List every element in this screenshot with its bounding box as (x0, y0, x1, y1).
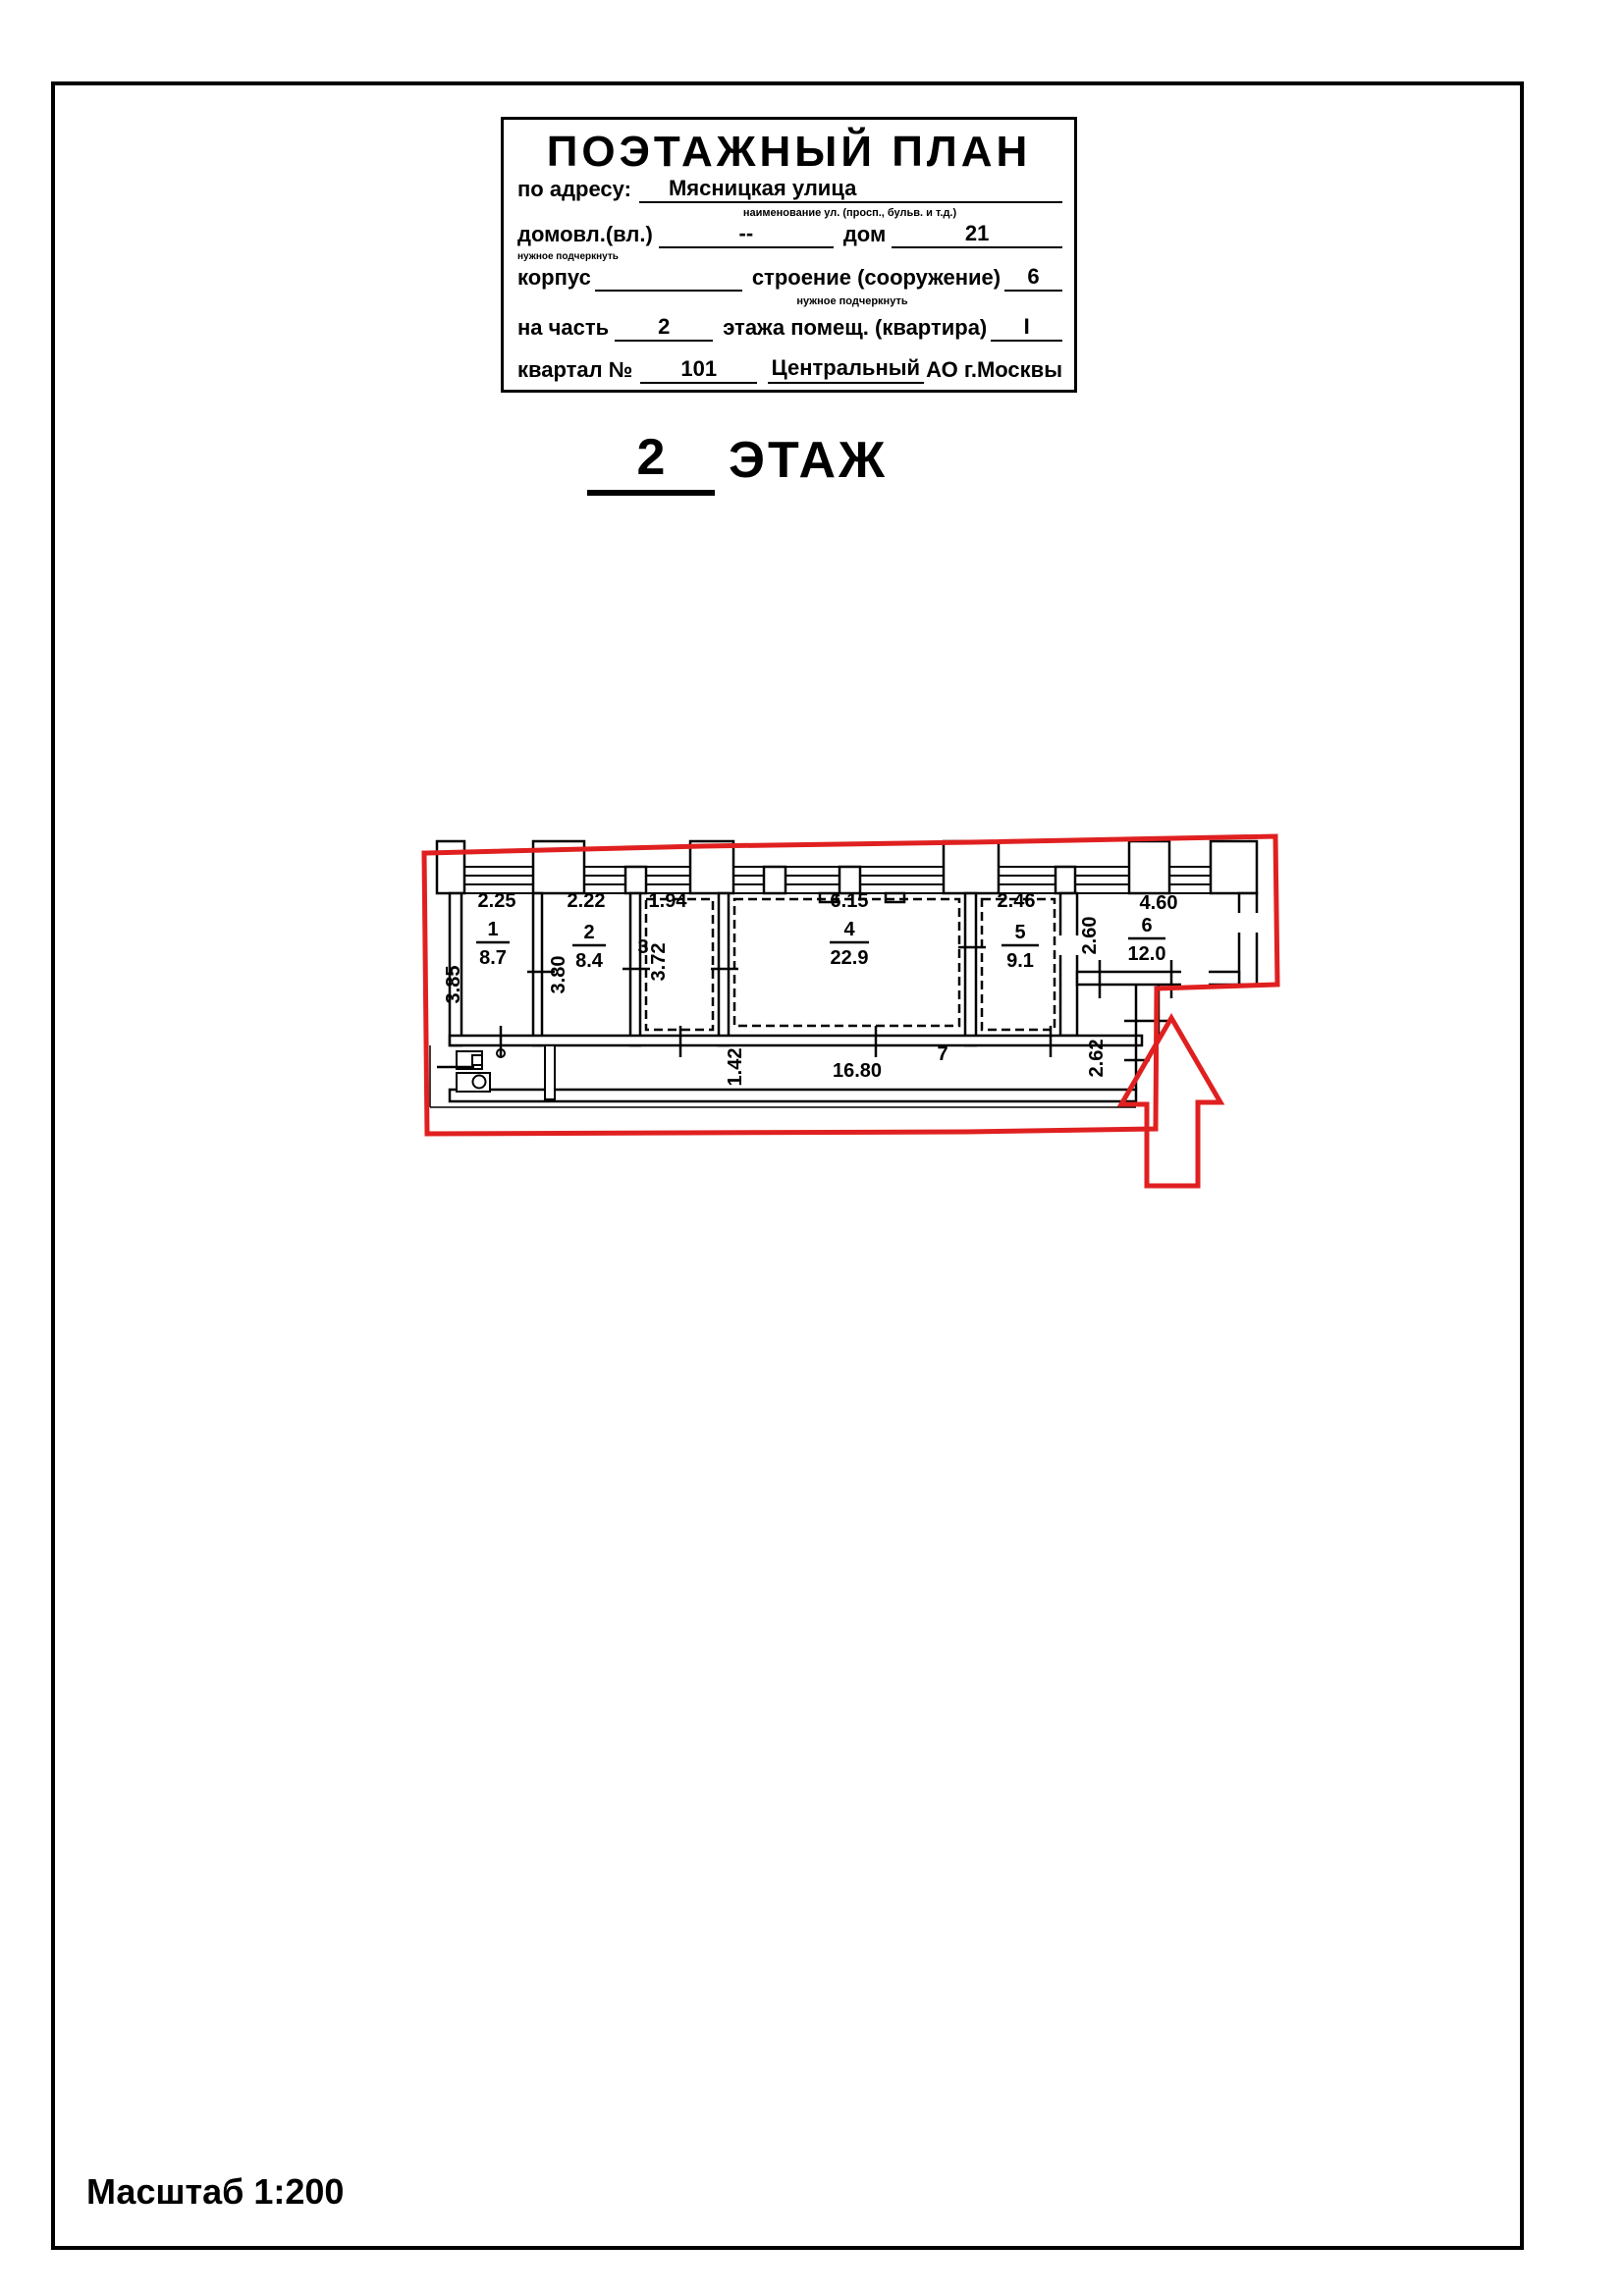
part-value: 2 (615, 314, 713, 342)
korpus-value (595, 268, 742, 292)
room-3-width-label: 1.94 (649, 890, 688, 912)
room-2-width-label: 2.22 (568, 890, 606, 912)
house-label: дом (843, 222, 886, 248)
floor-title: 2 ЭТАЖ (587, 428, 888, 496)
room-3-depth-label: 3.72 (648, 943, 670, 982)
kvartal-value: 101 (640, 356, 757, 384)
address-row: по адресу: Мясницкая улица (517, 176, 1062, 203)
stroenie-note: нужное подчеркнуть (749, 295, 955, 307)
toilet-tank-icon (472, 1055, 482, 1065)
district-suffix: АО г.Москвы (926, 357, 1062, 384)
district-value: Центральный (768, 355, 924, 384)
floor-part-label: этажа помещ. (квартира) (723, 315, 987, 342)
part-label: на часть (517, 315, 609, 342)
address-note: наименование ул. (просп., бульв. и т.д.) (631, 207, 1068, 219)
floor-part-value: I (991, 314, 1062, 342)
corridor-side-label: 2.62 (1086, 1040, 1108, 1078)
floor-number: 2 (587, 428, 715, 496)
stroenie-value: 6 (1004, 264, 1062, 292)
room-5-width-label: 2.46 (998, 890, 1036, 912)
korpus-label: корпус (517, 265, 591, 292)
floor-plan-stamp-box: ПОЭТАЖНЫЙ ПЛАН по адресу: Мясницкая улиц… (501, 117, 1077, 393)
ownership-value: -- (659, 221, 834, 248)
floor-plan: 2.25 1 8.7 3.85 2.22 2 8.4 3.80 1.94 3 3… (407, 810, 1291, 1202)
room-1-depth-label: 3.85 (443, 966, 464, 1004)
floor-word: ЭТАЖ (729, 431, 888, 496)
korpus-row: корпус строение (сооружение) 6 (517, 264, 1062, 292)
stamp-title: ПОЭТАЖНЫЙ ПЛАН (504, 128, 1074, 177)
address-value: Мясницкая улица (639, 176, 1062, 203)
scale-label: Масштаб 1:200 (86, 2171, 344, 2213)
room-5-area: 9.1 (1006, 950, 1034, 972)
corridor-number: 7 (937, 1043, 947, 1065)
fixture-room-wall (545, 1045, 555, 1099)
address-label: по адресу: (517, 177, 631, 203)
room-4-number: 4 (843, 919, 855, 940)
room-5-number: 5 (1014, 922, 1025, 943)
room-6-depth-label: 2.60 (1079, 917, 1101, 955)
room-6-area: 12.0 (1128, 943, 1166, 965)
sink-bowl-icon (473, 1076, 486, 1089)
stroenie-label: строение (сооружение) (752, 265, 1001, 292)
room-6-number: 6 (1141, 915, 1152, 936)
corridor-length-label: 16.80 (833, 1060, 882, 1082)
room-2-number: 2 (583, 922, 594, 943)
room-1-width-label: 2.25 (478, 890, 516, 912)
room-6-width-label: 4.60 (1140, 892, 1178, 914)
part-row: на часть 2 этажа помещ. (квартира) I (517, 314, 1062, 342)
house-value: 21 (892, 221, 1062, 248)
kvartal-row: квартал № 101 Центральный АО г.Москвы (517, 355, 1062, 384)
room-1-area: 8.7 (479, 947, 507, 969)
kvartal-label: квартал № (517, 357, 632, 384)
room-2-depth-label: 3.80 (548, 956, 569, 994)
room-4-width-label: 6.15 (831, 890, 869, 912)
ownership-note: нужное подчеркнуть (517, 251, 619, 262)
room-4-area: 22.9 (831, 947, 869, 969)
room-2-area: 8.4 (575, 950, 604, 972)
ownership-row: домовл.(вл.) -- дом 21 (517, 221, 1062, 248)
corridor-width-label: 1.42 (725, 1048, 746, 1087)
ownership-label: домовл.(вл.) (517, 222, 653, 248)
room-3-number: 3 (637, 936, 648, 958)
floor-plan-svg: 2.25 1 8.7 3.85 2.22 2 8.4 3.80 1.94 3 3… (407, 810, 1291, 1202)
room-1-number: 1 (487, 919, 498, 940)
